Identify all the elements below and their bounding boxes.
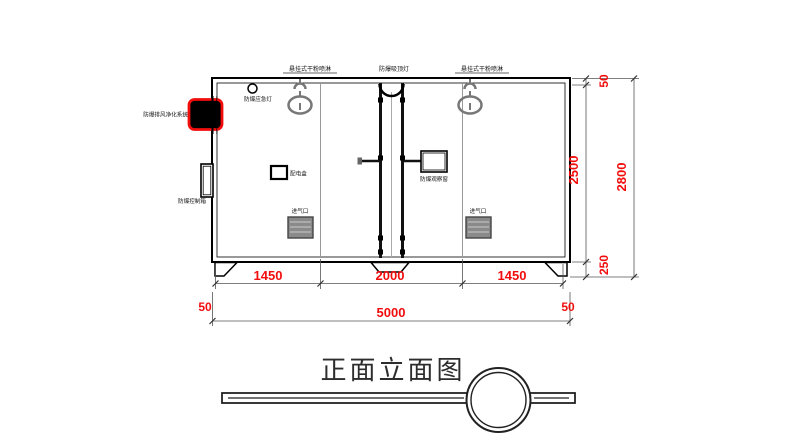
label-sprinkler-right: 悬挂式干粉喷淋 [461,65,503,73]
distribution-box-unit [271,166,287,179]
dim-bottom-margin-left: 50 [198,300,212,314]
label-exhaust-system: 防爆排风净化系统 [143,111,188,119]
label-ceiling-lamp: 防爆吸顶灯 [379,65,409,73]
title-circle-outer [467,368,531,432]
label-sprinkler-left: 悬挂式干粉喷淋 [289,65,331,73]
dim-bottom-margin-right: 50 [561,300,575,314]
label-air-inlet-left: 进气口 [292,207,309,215]
label-distribution-box: 配电盒 [290,170,307,178]
dim-right-body: 2500 [566,156,581,185]
foot-right [545,263,567,277]
dim-right-feet: 250 [597,255,611,275]
air-inlet-grille-left [288,217,313,238]
label-air-inlet-right: 进气口 [470,207,487,215]
title-block: 正面立面图 [222,356,575,432]
container-box [189,78,570,276]
front-elevation-svg: 悬挂式干粉喷淋 防爆吸顶灯 悬挂式干粉喷淋 防爆应急灯 防爆排风净化系统 防爆控… [0,0,800,445]
emergency-lamp-icon [248,84,257,93]
label-observation-window: 防爆观察窗 [420,175,448,183]
label-control-box: 防爆控制箱 [178,197,206,205]
drawing-title: 正面立面图 [320,356,465,385]
foot-left [215,263,237,277]
dim-right-top: 50 [597,74,611,88]
control-box-unit [201,164,213,197]
dim-bottom-total: 5000 [377,305,406,320]
dim-bottom-seg1: 1450 [254,268,283,283]
elevation-drawing-page: 悬挂式干粉喷淋 防爆吸顶灯 悬挂式干粉喷淋 防爆应急灯 防爆排风净化系统 防爆控… [0,0,800,445]
air-inlet-grille-right [466,217,491,238]
observation-window-unit [421,151,447,172]
label-emergency-lamp: 防爆应急灯 [244,95,272,103]
dim-right-total: 2800 [614,163,629,192]
dim-bottom-seg3: 1450 [498,268,527,283]
dim-bottom-seg2: 2000 [376,268,405,283]
